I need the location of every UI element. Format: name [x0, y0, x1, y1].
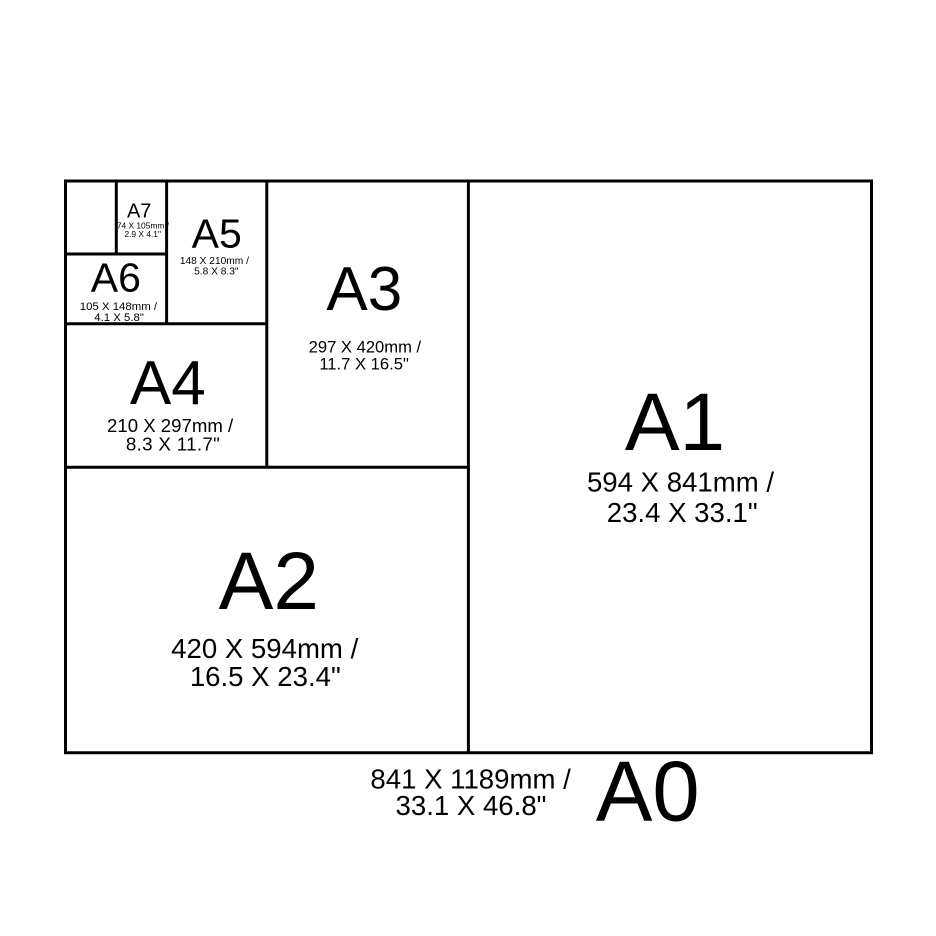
svg-text:8.3 X 11.7": 8.3 X 11.7" [126, 434, 220, 455]
svg-text:A3: A3 [326, 255, 402, 324]
svg-text:5.8 X 8.3": 5.8 X 8.3" [194, 266, 239, 277]
svg-text:420 X 594mm /: 420 X 594mm / [171, 633, 358, 664]
svg-text:23.4 X 33.1": 23.4 X 33.1" [607, 497, 758, 528]
svg-text:A2: A2 [219, 536, 319, 627]
svg-text:16.5 X 23.4": 16.5 X 23.4" [190, 661, 341, 692]
svg-text:11.7 X 16.5": 11.7 X 16.5" [319, 355, 409, 374]
svg-text:A5: A5 [192, 210, 242, 256]
svg-text:2.9 X 4.1": 2.9 X 4.1" [124, 229, 161, 239]
svg-text:297 X 420mm /: 297 X 420mm / [309, 337, 422, 356]
svg-text:A6: A6 [91, 254, 141, 300]
svg-text:A7: A7 [127, 201, 151, 223]
svg-text:4.1 X 5.8": 4.1 X 5.8" [94, 312, 144, 324]
svg-text:A4: A4 [130, 349, 206, 418]
svg-text:594 X 841mm /: 594 X 841mm / [587, 467, 774, 498]
svg-text:A0: A0 [596, 745, 700, 840]
svg-text:33.1 X 46.8": 33.1 X 46.8" [396, 790, 547, 821]
svg-text:A1: A1 [625, 377, 725, 468]
svg-text:148 X 210mm /: 148 X 210mm / [180, 256, 249, 267]
